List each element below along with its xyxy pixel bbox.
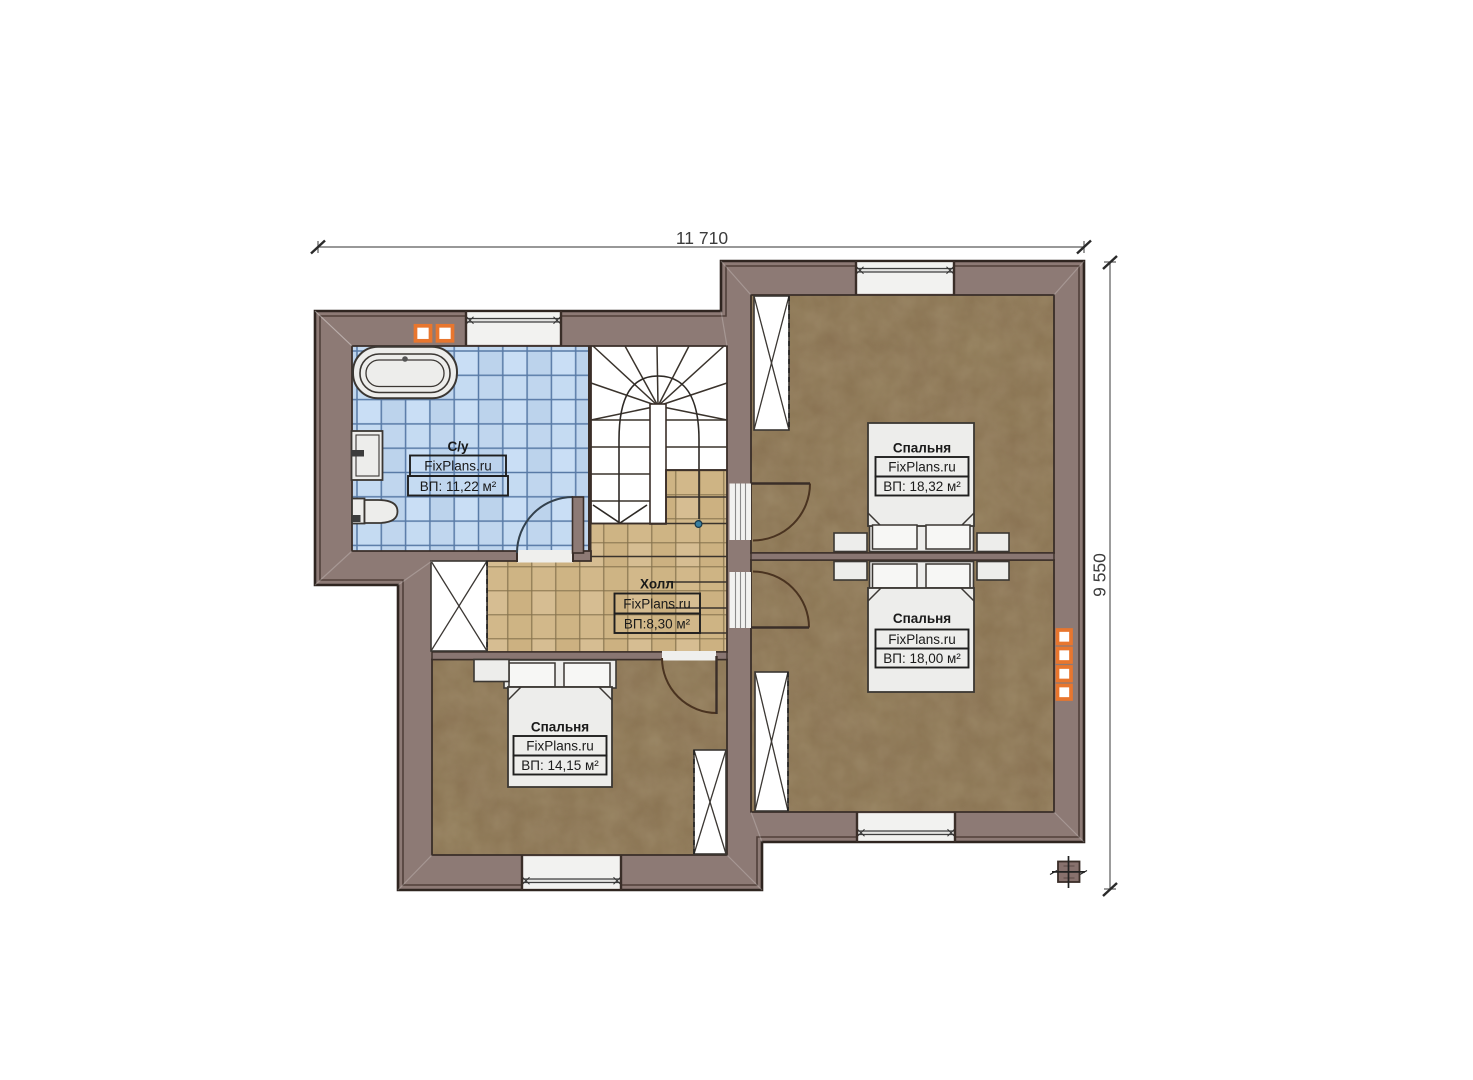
svg-text:Спальня: Спальня xyxy=(893,611,951,626)
svg-text:FixPlans.ru: FixPlans.ru xyxy=(888,460,956,475)
svg-text:FixPlans.ru: FixPlans.ru xyxy=(623,597,691,612)
svg-text:FixPlans.ru: FixPlans.ru xyxy=(526,739,594,754)
svg-text:ВП: 18,32 м²: ВП: 18,32 м² xyxy=(883,479,961,494)
svg-text:FixPlans.ru: FixPlans.ru xyxy=(888,632,956,647)
svg-text:Спальня: Спальня xyxy=(893,441,951,456)
svg-text:Холл: Холл xyxy=(640,577,674,592)
svg-text:ВП:8,30 м²: ВП:8,30 м² xyxy=(624,617,691,632)
svg-text:FixPlans.ru: FixPlans.ru xyxy=(424,459,492,474)
svg-text:С/у: С/у xyxy=(447,439,469,454)
svg-text:9 550: 9 550 xyxy=(1090,553,1110,597)
svg-text:Спальня: Спальня xyxy=(531,720,589,735)
svg-text:ВП: 11,22 м²: ВП: 11,22 м² xyxy=(420,479,497,494)
svg-text:ВП: 14,15 м²: ВП: 14,15 м² xyxy=(521,758,599,773)
svg-text:11 710: 11 710 xyxy=(676,228,728,248)
svg-text:ВП: 18,00 м²: ВП: 18,00 м² xyxy=(883,651,961,666)
